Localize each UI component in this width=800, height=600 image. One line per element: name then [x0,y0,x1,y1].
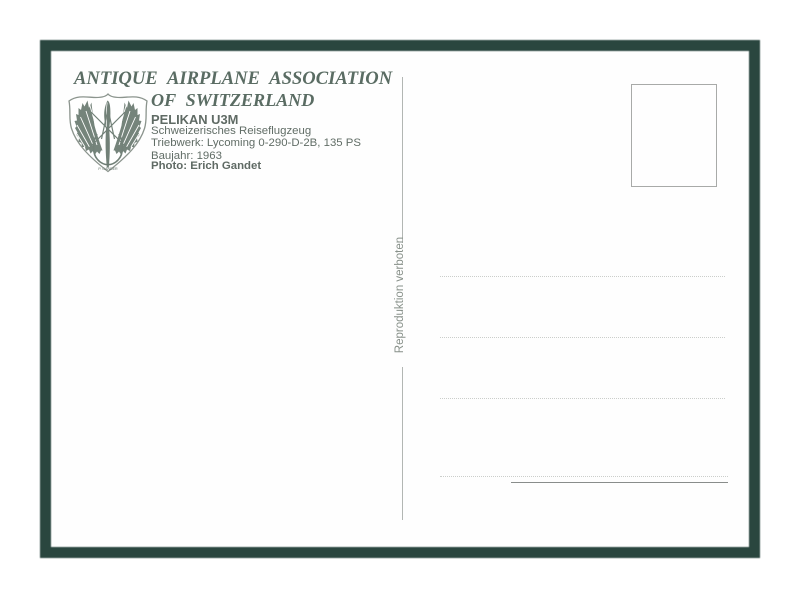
svg-text:P. GANDER: P. GANDER [98,167,118,171]
